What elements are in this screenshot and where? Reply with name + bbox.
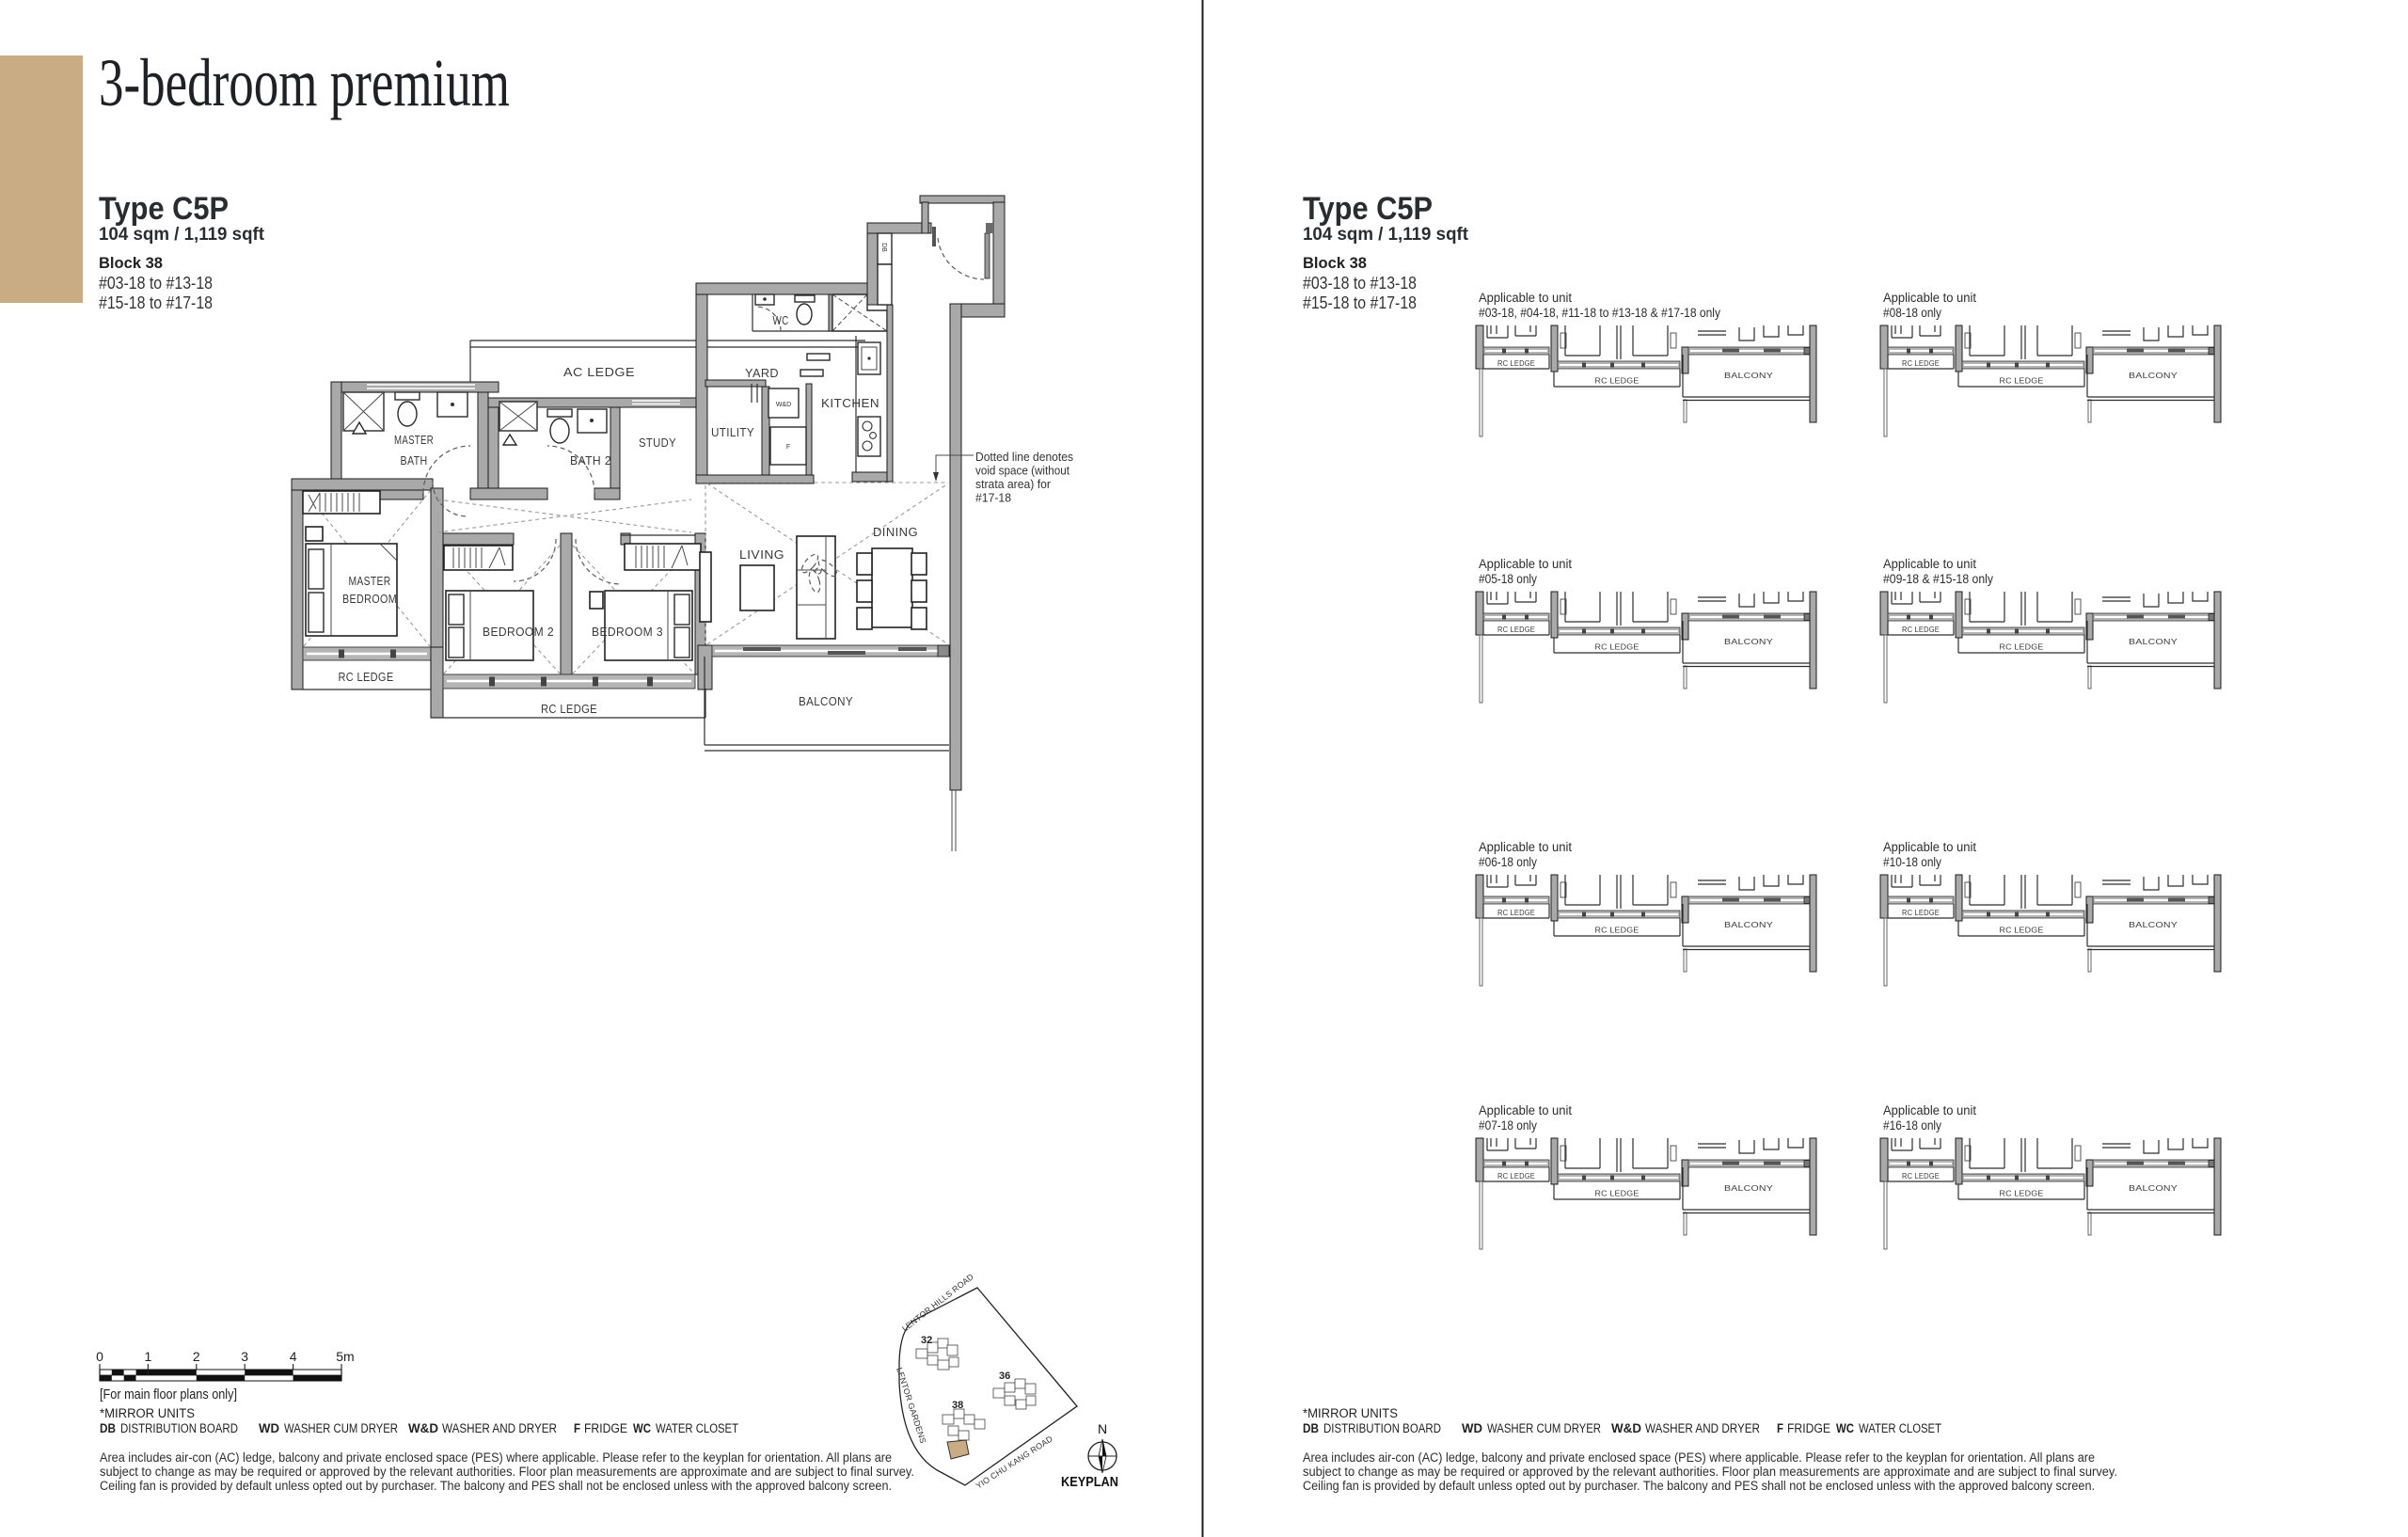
svg-text:W&D: W&D <box>776 402 791 408</box>
svg-text:KITCHEN: KITCHEN <box>821 397 879 410</box>
svg-text:WD: WD <box>1462 1421 1482 1435</box>
svg-text:4: 4 <box>290 1349 297 1364</box>
svg-text:DISTRIBUTION BOARD: DISTRIBUTION BOARD <box>120 1421 238 1435</box>
svg-text:F: F <box>574 1421 580 1435</box>
svg-text:LIVING: LIVING <box>739 548 784 562</box>
svg-text:DB: DB <box>1303 1421 1319 1435</box>
svg-text:STUDY: STUDY <box>639 436 676 450</box>
svg-text:#07-18 only: #07-18 only <box>1479 1118 1537 1133</box>
svg-text:Applicable to unit: Applicable to unit <box>1479 1103 1572 1117</box>
svg-text:UTILITY: UTILITY <box>711 426 754 439</box>
svg-text:Type C5P: Type C5P <box>1303 191 1433 227</box>
svg-text:#15-18 to #17-18: #15-18 to #17-18 <box>1303 293 1417 312</box>
svg-text:2: 2 <box>193 1349 200 1364</box>
svg-text:0: 0 <box>96 1349 103 1364</box>
svg-text:WC: WC <box>1836 1421 1854 1435</box>
svg-text:WD: WD <box>259 1421 279 1435</box>
svg-text:Applicable to unit: Applicable to unit <box>1479 291 1572 305</box>
svg-text:Applicable to unit: Applicable to unit <box>1883 840 1976 854</box>
svg-text:Block 38: Block 38 <box>1303 254 1367 272</box>
svg-text:DISTRIBUTION BOARD: DISTRIBUTION BOARD <box>1323 1421 1441 1435</box>
svg-text:3: 3 <box>241 1349 248 1364</box>
svg-text:*MIRROR UNITS: *MIRROR UNITS <box>1303 1406 1398 1420</box>
svg-text:W&D: W&D <box>408 1421 438 1435</box>
svg-text:AC LEDGE: AC LEDGE <box>563 366 635 379</box>
svg-text:#03-18 to #13-18: #03-18 to #13-18 <box>1303 274 1417 293</box>
svg-text:BATH 2: BATH 2 <box>570 454 611 467</box>
svg-text:FRIDGE: FRIDGE <box>1787 1421 1830 1435</box>
svg-text:DINING: DINING <box>873 526 918 539</box>
svg-text:strata area) for: strata area) for <box>975 478 1051 491</box>
svg-text:WC: WC <box>633 1421 651 1435</box>
svg-text:Area includes air-con (AC) led: Area includes air-con (AC) ledge, balcon… <box>100 1450 892 1465</box>
svg-text:Area includes air-con (AC) led: Area includes air-con (AC) ledge, balcon… <box>1303 1450 2095 1465</box>
svg-text:void space (without: void space (without <box>975 465 1069 478</box>
svg-text:#08-18 only: #08-18 only <box>1883 306 1941 320</box>
svg-text:WASHER CUM DRYER: WASHER CUM DRYER <box>284 1421 398 1435</box>
svg-text:MASTER: MASTER <box>349 575 391 588</box>
svg-text:subject to change as may be re: subject to change as may be required or … <box>1303 1465 2117 1479</box>
svg-text:F: F <box>786 444 790 451</box>
svg-text:Block 38: Block 38 <box>99 254 163 272</box>
svg-text:Applicable to unit: Applicable to unit <box>1883 557 1976 571</box>
svg-text:W&D: W&D <box>1611 1421 1641 1435</box>
svg-text:DB: DB <box>100 1421 116 1435</box>
svg-text:#03-18 to #13-18: #03-18 to #13-18 <box>99 274 213 293</box>
svg-text:RC LEDGE: RC LEDGE <box>541 703 597 716</box>
svg-text:Applicable to unit: Applicable to unit <box>1883 291 1976 305</box>
svg-text:3-bedroom premium: 3-bedroom premium <box>99 45 510 120</box>
svg-text:Applicable to unit: Applicable to unit <box>1479 840 1572 854</box>
svg-text:#05-18 only: #05-18 only <box>1479 572 1537 586</box>
svg-text:#10-18 only: #10-18 only <box>1883 855 1941 869</box>
svg-text:32: 32 <box>921 1335 932 1346</box>
svg-text:#15-18 to #17-18: #15-18 to #17-18 <box>99 293 213 312</box>
svg-text:WASHER AND DRYER: WASHER AND DRYER <box>442 1421 557 1435</box>
svg-text:DB: DB <box>880 243 887 252</box>
svg-text:WASHER AND DRYER: WASHER AND DRYER <box>1645 1421 1760 1435</box>
svg-text:Dotted line denotes: Dotted line denotes <box>975 451 1073 464</box>
svg-text:BEDROOM 3: BEDROOM 3 <box>592 626 663 639</box>
svg-text:1: 1 <box>145 1349 152 1364</box>
svg-text:104 sqm / 1,119 sqft: 104 sqm / 1,119 sqft <box>1303 225 1469 245</box>
svg-text:#03-18, #04-18, #11-18 to #13-: #03-18, #04-18, #11-18 to #13-18 & #17-1… <box>1479 306 1720 320</box>
svg-text:BEDROOM: BEDROOM <box>342 593 397 606</box>
svg-text:5m: 5m <box>336 1349 354 1364</box>
svg-text:#09-18 & #15-18 only: #09-18 & #15-18 only <box>1883 572 1993 586</box>
svg-text:BATH: BATH <box>401 454 428 467</box>
svg-text:38: 38 <box>952 1400 963 1411</box>
svg-text:RC LEDGE: RC LEDGE <box>339 671 394 684</box>
svg-text:F: F <box>1777 1421 1783 1435</box>
svg-text:MASTER: MASTER <box>394 434 434 447</box>
svg-text:FRIDGE: FRIDGE <box>584 1421 627 1435</box>
svg-text:36: 36 <box>999 1371 1010 1382</box>
svg-text:#16-18 only: #16-18 only <box>1883 1118 1941 1133</box>
svg-text:Ceiling fan is provided by def: Ceiling fan is provided by default unles… <box>100 1479 892 1493</box>
svg-text:104 sqm / 1,119 sqft: 104 sqm / 1,119 sqft <box>99 225 265 245</box>
svg-text:BEDROOM 2: BEDROOM 2 <box>483 626 554 639</box>
svg-text:WC: WC <box>773 314 789 327</box>
svg-text:Applicable to unit: Applicable to unit <box>1479 557 1572 571</box>
svg-text:WASHER CUM DRYER: WASHER CUM DRYER <box>1487 1421 1601 1435</box>
svg-text:#06-18 only: #06-18 only <box>1479 855 1537 869</box>
svg-text:#17-18: #17-18 <box>975 492 1011 505</box>
svg-text:Type C5P: Type C5P <box>99 191 229 227</box>
svg-text:WATER CLOSET: WATER CLOSET <box>656 1421 738 1435</box>
svg-text:BALCONY: BALCONY <box>799 695 853 708</box>
svg-text:subject to change as may be re: subject to change as may be required or … <box>100 1465 914 1479</box>
svg-text:[For main floor plans only]: [For main floor plans only] <box>100 1386 237 1402</box>
svg-text:N: N <box>1098 1421 1107 1436</box>
svg-text:WATER CLOSET: WATER CLOSET <box>1859 1421 1941 1435</box>
svg-text:YARD: YARD <box>745 367 779 380</box>
svg-text:Applicable to unit: Applicable to unit <box>1883 1103 1976 1117</box>
svg-text:KEYPLAN: KEYPLAN <box>1061 1475 1118 1490</box>
svg-text:*MIRROR UNITS: *MIRROR UNITS <box>100 1406 195 1420</box>
svg-text:Ceiling fan is provided by def: Ceiling fan is provided by default unles… <box>1303 1479 2095 1493</box>
